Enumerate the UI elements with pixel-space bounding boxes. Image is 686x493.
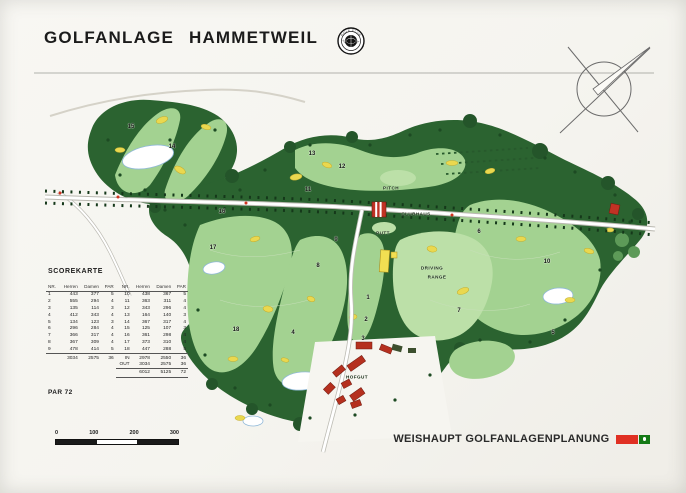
score-cell: 317: [152, 319, 173, 326]
score-cell: 2: [46, 298, 59, 305]
score-cell: 5: [46, 319, 59, 326]
score-cell: 294: [80, 298, 101, 305]
score-cell: 4: [46, 312, 59, 319]
score-cell: 361: [132, 332, 152, 339]
score-cell: 3: [173, 325, 188, 332]
score-cell: 3: [101, 319, 116, 326]
score-cell: 366: [59, 332, 79, 339]
score-total-cell: IN: [116, 353, 132, 361]
score-row: 31351143123432964: [46, 305, 188, 312]
score-cell: 367: [59, 339, 79, 346]
col-par-out: PAR: [101, 284, 116, 291]
score-total-cell: 6012: [132, 369, 152, 378]
golf-club-logo-icon: GOLF CLUB HAMMETWEIL: [338, 28, 364, 54]
score-total-cell: 36: [101, 353, 116, 361]
score-cell: 414: [80, 346, 101, 353]
scale-0: 0: [55, 430, 58, 436]
compass-icon: [560, 47, 650, 133]
score-cell: 140: [152, 312, 173, 319]
scale-seg-2: [97, 440, 138, 444]
score-row: 62962844151251073: [46, 325, 188, 332]
score-total-cell: 2550: [152, 353, 173, 361]
scorecard-table: NR. Herren Damen PAR NR. Herren Damen PA…: [46, 284, 188, 378]
scorecard-header-row: NR. Herren Damen PAR NR. Herren Damen PA…: [46, 284, 188, 291]
score-cell: 13: [116, 312, 132, 319]
score-cell: 3: [173, 312, 188, 319]
scale-seg-3: [137, 440, 178, 444]
scale-seg-1: [56, 440, 97, 444]
score-cell: 5: [101, 291, 116, 298]
score-row: 94784145184472885: [46, 346, 188, 353]
score-cell: 16: [116, 332, 132, 339]
score-total-cell: [80, 361, 101, 368]
scale-bar: 0 100 200 300: [55, 430, 179, 445]
score-total-cell: [101, 361, 116, 368]
score-row: 14433775104383675: [46, 291, 188, 298]
score-total-cell: OUT: [116, 361, 132, 368]
score-cell: 288: [152, 346, 173, 353]
score-cell: 5: [173, 291, 188, 298]
score-cell: 12: [116, 305, 132, 312]
score-total-cell: 3034: [132, 361, 152, 368]
score-cell: 164: [132, 312, 152, 319]
score-cell: 317: [80, 332, 101, 339]
score-cell: 4: [173, 332, 188, 339]
score-cell: 134: [59, 319, 79, 326]
score-cell: 4: [101, 312, 116, 319]
score-cell: 412: [59, 312, 79, 319]
score-total-cell: 36: [173, 353, 188, 361]
score-cell: 363: [132, 298, 152, 305]
score-cell: 4: [101, 298, 116, 305]
score-cell: 311: [152, 298, 173, 305]
score-cell: 18: [116, 346, 132, 353]
score-total-cell: [101, 369, 116, 378]
score-total-cell: [46, 369, 59, 378]
score-cell: 443: [59, 291, 79, 298]
score-total-cell: [46, 361, 59, 368]
score-cell: 123: [80, 319, 101, 326]
score-total-cell: [59, 369, 79, 378]
col-par-in: PAR: [173, 284, 188, 291]
score-cell: 296: [59, 325, 79, 332]
logo-green-square: [639, 435, 650, 444]
score-total-cell: 36: [173, 361, 188, 368]
score-cell: 14: [116, 319, 132, 326]
score-cell: 4: [173, 298, 188, 305]
score-total-cell: 3034: [59, 353, 79, 361]
score-cell: 367: [152, 291, 173, 298]
score-cell: 114: [80, 305, 101, 312]
scale-bar-segments: [55, 439, 179, 445]
scorecard-heading: SCOREKARTE: [48, 268, 196, 275]
logo-red-bar: [616, 435, 638, 444]
scale-300: 300: [170, 430, 179, 436]
col-nr-in: NR.: [116, 284, 132, 291]
score-cell: 4: [101, 332, 116, 339]
score-cell: 15: [116, 325, 132, 332]
scale-100: 100: [89, 430, 98, 436]
score-cell: 343: [132, 305, 152, 312]
score-total-row: OUT3034257536: [46, 361, 188, 368]
score-cell: 296: [152, 305, 173, 312]
score-total-row: 6012512572: [46, 369, 188, 378]
score-cell: 4: [173, 319, 188, 326]
score-cell: 3: [101, 305, 116, 312]
page-title: GOLFANLAGE HAMMETWEIL: [44, 28, 318, 48]
score-total-cell: 72: [173, 369, 188, 378]
col-nr-out: NR.: [46, 284, 59, 291]
score-row: 73663174163612984: [46, 332, 188, 339]
score-cell: 310: [152, 339, 173, 346]
score-row: 83673094173733104: [46, 339, 188, 346]
score-cell: 478: [59, 346, 79, 353]
score-cell: 3: [46, 305, 59, 312]
score-cell: 11: [116, 298, 132, 305]
col-damen-in: Damen: [152, 284, 173, 291]
score-cell: 373: [132, 339, 152, 346]
score-row: 44123434131641403: [46, 312, 188, 319]
score-cell: 125: [132, 325, 152, 332]
score-cell: 10: [116, 291, 132, 298]
score-cell: 1: [46, 291, 59, 298]
score-cell: 5: [101, 346, 116, 353]
score-cell: 6: [46, 325, 59, 332]
score-cell: 9: [46, 346, 59, 353]
score-total-cell: [80, 369, 101, 378]
score-cell: 4: [173, 339, 188, 346]
score-cell: 8: [46, 339, 59, 346]
score-total-row: 3034257536IN2978255036: [46, 353, 188, 361]
scale-200: 200: [130, 430, 139, 436]
score-total-cell: 2978: [132, 353, 152, 361]
score-cell: 309: [80, 339, 101, 346]
score-cell: 284: [80, 325, 101, 332]
score-cell: 343: [80, 312, 101, 319]
score-row: 25552944113633114: [46, 298, 188, 305]
score-cell: 7: [46, 332, 59, 339]
score-cell: 4: [173, 305, 188, 312]
score-total-cell: [116, 369, 132, 378]
score-total-cell: [59, 361, 79, 368]
par-total: PAR 72: [48, 389, 196, 396]
score-cell: 135: [59, 305, 79, 312]
score-row: 51341233143673174: [46, 319, 188, 326]
score-cell: 5: [173, 346, 188, 353]
score-total-cell: 2575: [152, 361, 173, 368]
score-cell: 17: [116, 339, 132, 346]
score-total-cell: [46, 353, 59, 361]
score-cell: 4: [101, 325, 116, 332]
plan-sheet: GOLF CLUB HAMMETWEIL: [0, 0, 686, 493]
col-damen-out: Damen: [80, 284, 101, 291]
score-cell: 298: [152, 332, 173, 339]
score-cell: 447: [132, 346, 152, 353]
col-herren-out: Herren: [59, 284, 79, 291]
score-cell: 4: [101, 339, 116, 346]
score-cell: 438: [132, 291, 152, 298]
score-cell: 107: [152, 325, 173, 332]
score-total-cell: 2575: [80, 353, 101, 361]
score-cell: 377: [80, 291, 101, 298]
score-cell: 367: [132, 319, 152, 326]
scorecard-panel: SCOREKARTE NR. Herren Damen PAR NR. Herr…: [46, 268, 196, 396]
weishaupt-logo-icon: [616, 435, 651, 444]
planner-credit: WEISHAUPT GOLFANLAGENPLANUNG: [393, 433, 650, 445]
credit-text: WEISHAUPT GOLFANLAGENPLANUNG: [393, 433, 609, 445]
scale-labels: 0 100 200 300: [55, 430, 179, 436]
score-total-cell: 5125: [152, 369, 173, 378]
outbuilding-east: [609, 203, 620, 215]
clubhouse-building: [372, 202, 386, 217]
score-cell: 555: [59, 298, 79, 305]
course-map: GOLF CLUB HAMMETWEIL: [0, 0, 686, 493]
col-herren-in: Herren: [132, 284, 152, 291]
